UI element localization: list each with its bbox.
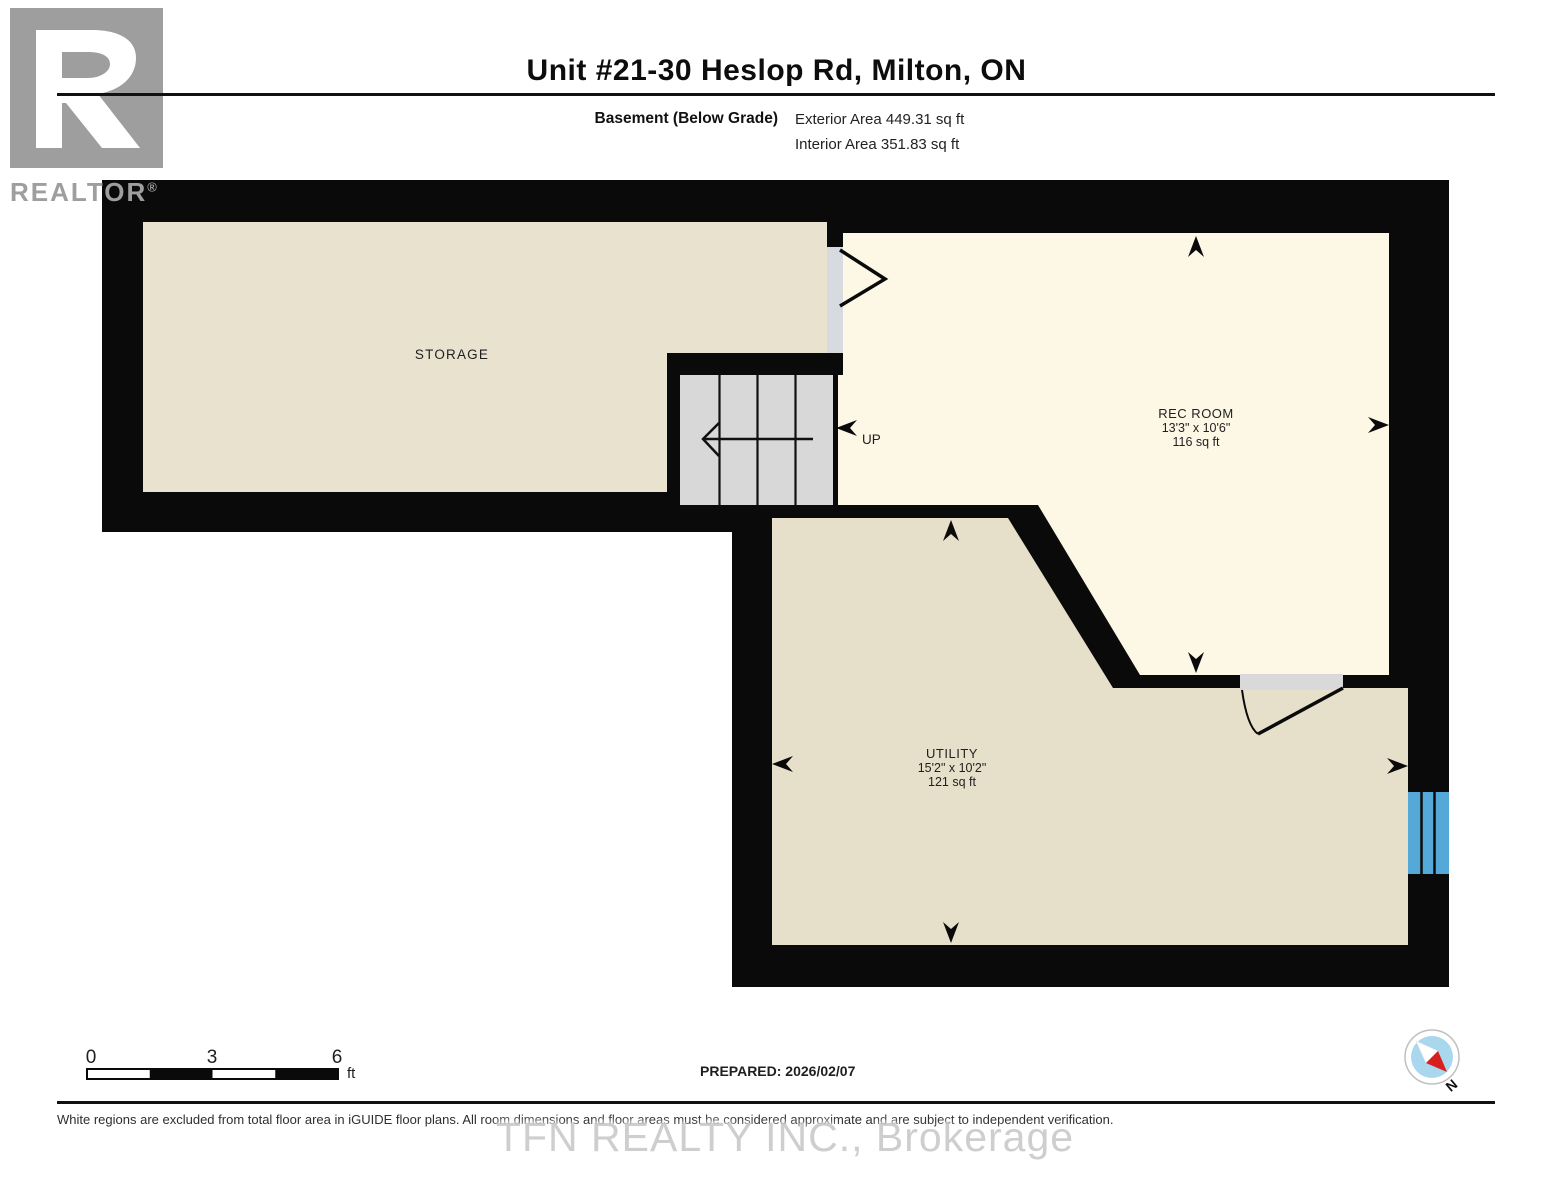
up-label: UP <box>862 432 881 447</box>
utility-area: 121 sq ft <box>928 775 976 789</box>
utility-dimensions: 15'2" x 10'2" <box>918 761 987 775</box>
compass-icon: N <box>1405 1030 1460 1095</box>
rec-room-name: REC ROOM <box>1158 406 1234 421</box>
scale-bar: 0 3 6 ft <box>86 1047 356 1082</box>
page-title: Unit #21-30 Heslop Rd, Milton, ON <box>0 54 1553 88</box>
interior-area: Interior Area 351.83 sq ft <box>795 136 959 153</box>
scale-unit: ft <box>347 1065 356 1082</box>
floor-label: Basement (Below Grade) <box>0 110 778 128</box>
scale-tick-0: 0 <box>86 1047 97 1068</box>
prepared-date: PREPARED: 2026/02/07 <box>700 1063 856 1079</box>
storage-label: STORAGE <box>415 347 489 362</box>
floor-plan-page: STORAGE UP REC ROOM 13'3" x 10'6" 116 sq… <box>0 0 1553 1200</box>
staircase <box>680 375 833 505</box>
scale-tick-3: 3 <box>207 1047 218 1068</box>
realtor-logo: REALTOR® <box>10 8 163 208</box>
floor-plan-canvas: STORAGE UP REC ROOM 13'3" x 10'6" 116 sq… <box>0 0 1553 1200</box>
registered-mark: ® <box>147 179 159 194</box>
realtor-logo-icon <box>10 8 163 168</box>
utility-name: UTILITY <box>926 746 978 761</box>
window-icon <box>1408 792 1449 874</box>
brokerage-watermark: TFN REALTY INC., Brokerage <box>420 1114 1150 1161</box>
realtor-logo-word: REALTOR® <box>10 177 163 208</box>
scale-tick-6: 6 <box>332 1047 343 1068</box>
title-underline <box>57 93 1495 96</box>
realtor-brand-text: REALTOR <box>10 177 147 207</box>
rec-room-dimensions: 13'3" x 10'6" <box>1162 421 1231 435</box>
footer-separator <box>57 1101 1495 1104</box>
rec-room-area: 116 sq ft <box>1172 435 1220 449</box>
exterior-area: Exterior Area 449.31 sq ft <box>795 111 964 128</box>
